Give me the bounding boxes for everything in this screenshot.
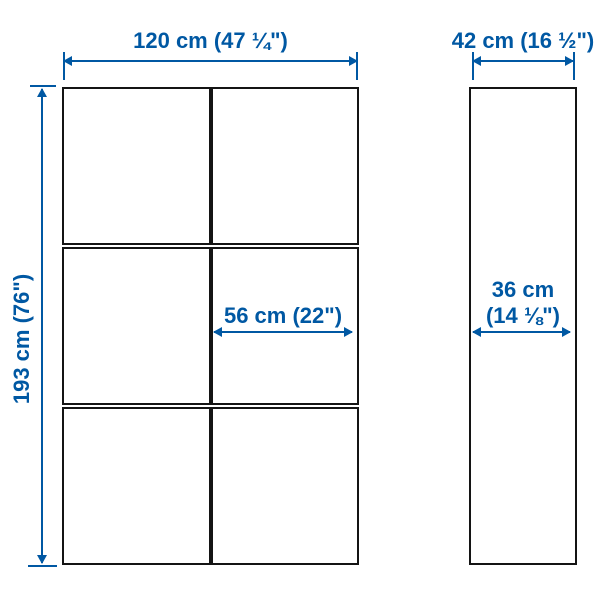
dimension-tick: [573, 52, 575, 80]
dimension-tick: [472, 52, 474, 80]
cabinet-cell: [62, 87, 211, 245]
cabinet-cell: [211, 407, 360, 565]
arrow-right-icon: [344, 327, 353, 337]
inner-depth-label-line1: 36 cm: [448, 277, 598, 303]
inner-depth-label-line2: (14 ⅛"): [448, 303, 598, 329]
front-width-arrow: [64, 60, 357, 62]
dimension-tick: [356, 52, 358, 80]
arrow-right-icon: [562, 327, 571, 337]
front-height-label: 193 cm (76"): [9, 269, 35, 409]
front-width-label: 120 cm (47 ¼"): [62, 28, 359, 54]
cabinet-cell: [211, 87, 360, 245]
cabinet-row: [62, 407, 359, 565]
side-depth-label: 42 cm (16 ½"): [448, 28, 598, 54]
dimension-tick: [28, 565, 57, 567]
inner-depth-label: 36 cm (14 ⅛"): [448, 277, 598, 329]
cabinet-cell: [62, 247, 211, 405]
arrow-down-icon: [37, 555, 47, 564]
arrow-up-icon: [37, 88, 47, 97]
dimension-tick: [63, 52, 65, 80]
product-dimension-diagram: 120 cm (47 ¼") 42 cm (16 ½") 193 cm (76"…: [0, 0, 600, 600]
inner-depth-arrow: [473, 331, 570, 333]
arrow-left-icon: [213, 327, 222, 337]
door-width-arrow: [214, 331, 352, 333]
cabinet-cell: [62, 407, 211, 565]
door-width-label: 56 cm (22"): [214, 303, 352, 329]
arrow-left-icon: [472, 327, 481, 337]
cabinet-row: [62, 87, 359, 245]
dimension-tick: [30, 85, 56, 87]
side-depth-arrow: [473, 60, 573, 62]
front-height-arrow: [41, 89, 43, 563]
